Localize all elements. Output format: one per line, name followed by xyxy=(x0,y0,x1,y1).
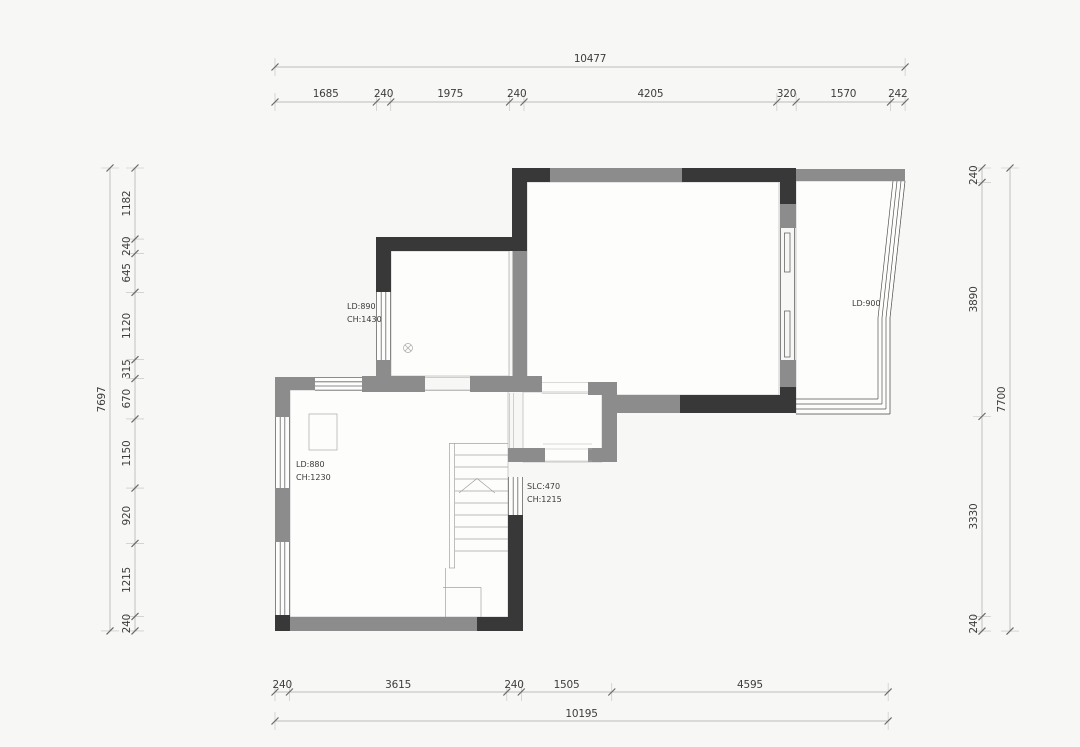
dim-bottom-total: 10195 xyxy=(272,708,892,730)
dim-label: 10195 xyxy=(565,708,597,720)
dim-label: 7700 xyxy=(996,387,1008,413)
room-lower-left xyxy=(290,390,508,617)
dim-label: 1150 xyxy=(121,441,133,467)
dim-label: 3330 xyxy=(968,504,980,530)
dim-label: 1215 xyxy=(121,567,133,593)
dim-label: 315 xyxy=(121,359,133,378)
dim-top-total: 10477 xyxy=(272,53,909,76)
dim-right-total: 7700 xyxy=(996,165,1019,635)
label-window-upper-left-2: CH:1430 xyxy=(347,315,382,324)
dim-label: 920 xyxy=(121,506,133,525)
dim-label: 670 xyxy=(121,389,133,408)
dim-top-segments: 1685240197524042053201570242 xyxy=(272,88,909,111)
dim-label: 1120 xyxy=(121,313,133,339)
dim-left-segments: 1182240645112031567011509201215240 xyxy=(121,165,144,635)
dim-bottom-segments: 240361524015054595 xyxy=(272,679,892,701)
dim-label: 3890 xyxy=(968,286,980,312)
dim-label: 240 xyxy=(121,237,133,256)
dim-label: 240 xyxy=(374,88,393,100)
balcony xyxy=(796,181,905,414)
dim-label: 240 xyxy=(272,679,291,691)
label-balcony-window: LD:900 xyxy=(852,299,881,308)
label-window-upper-left-1: LD:890 xyxy=(347,302,376,311)
dim-label: 1685 xyxy=(313,88,339,100)
dim-label: 645 xyxy=(121,263,133,282)
dim-right-segments: 24038903330240 xyxy=(968,165,991,635)
dim-label: 240 xyxy=(968,165,980,184)
dim-label: 240 xyxy=(121,614,133,633)
dim-label: 1505 xyxy=(554,679,580,691)
dim-label: 4595 xyxy=(737,679,763,691)
dim-label: 4205 xyxy=(637,88,663,100)
dim-left-total: 7697 xyxy=(96,165,119,635)
label-window-lower-left-1: LD:880 xyxy=(296,460,325,469)
sliding-window-right-wall xyxy=(781,228,795,360)
dim-label: 240 xyxy=(968,614,980,633)
balcony-top-wall xyxy=(796,169,905,181)
dim-label: 240 xyxy=(504,679,523,691)
dim-label: 3615 xyxy=(385,679,411,691)
room-upper-left xyxy=(391,251,509,376)
dim-label: 320 xyxy=(777,88,796,100)
dim-label: 242 xyxy=(888,88,907,100)
dim-label: 240 xyxy=(507,88,526,100)
floor-plan-page: LD:890 CH:1430 LD:900 LD:880 CH:1230 SLC… xyxy=(0,0,1080,747)
dim-label: 1182 xyxy=(121,191,133,217)
label-stair-window-1: SLC:470 xyxy=(527,482,560,491)
label-window-lower-left-2: CH:1230 xyxy=(296,473,331,482)
room-large-right xyxy=(527,182,779,395)
dim-label: 1570 xyxy=(830,88,856,100)
dim-label: 10477 xyxy=(574,53,606,65)
dim-label: 7697 xyxy=(96,386,108,412)
dim-label: 1975 xyxy=(437,88,463,100)
floor-plan-canvas: LD:890 CH:1430 LD:900 LD:880 CH:1230 SLC… xyxy=(0,0,1080,747)
label-stair-window-2: CH:1215 xyxy=(527,495,562,504)
